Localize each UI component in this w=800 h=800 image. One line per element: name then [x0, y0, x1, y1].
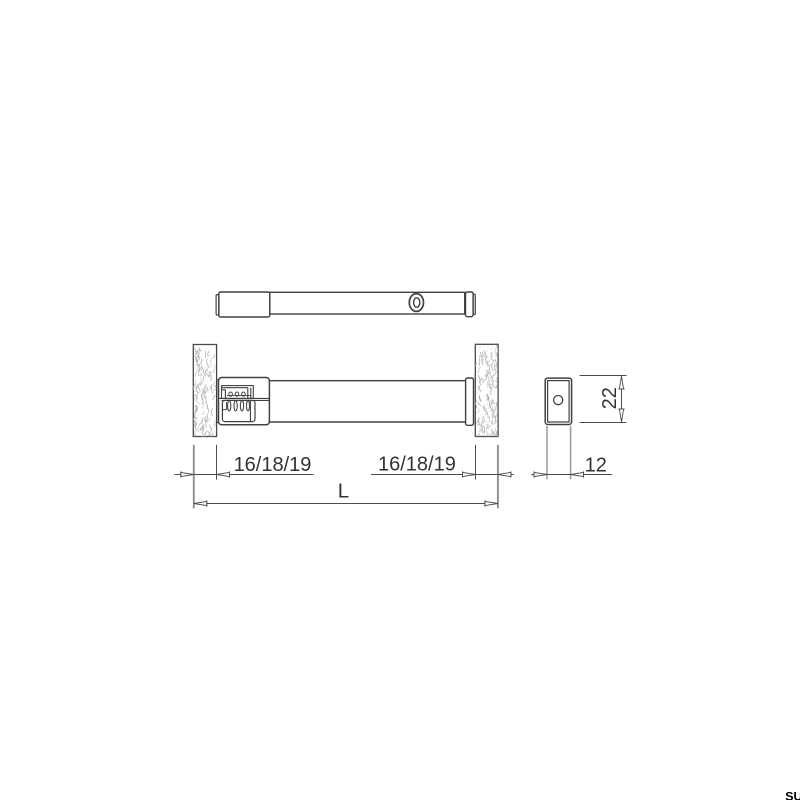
svg-text:22: 22: [599, 387, 621, 409]
svg-text:16/18/19: 16/18/19: [234, 454, 312, 476]
svg-text:L: L: [338, 479, 349, 502]
svg-text:SU: SU: [785, 790, 800, 800]
svg-text:16/18/19: 16/18/19: [378, 454, 456, 476]
svg-text:12: 12: [585, 454, 607, 476]
